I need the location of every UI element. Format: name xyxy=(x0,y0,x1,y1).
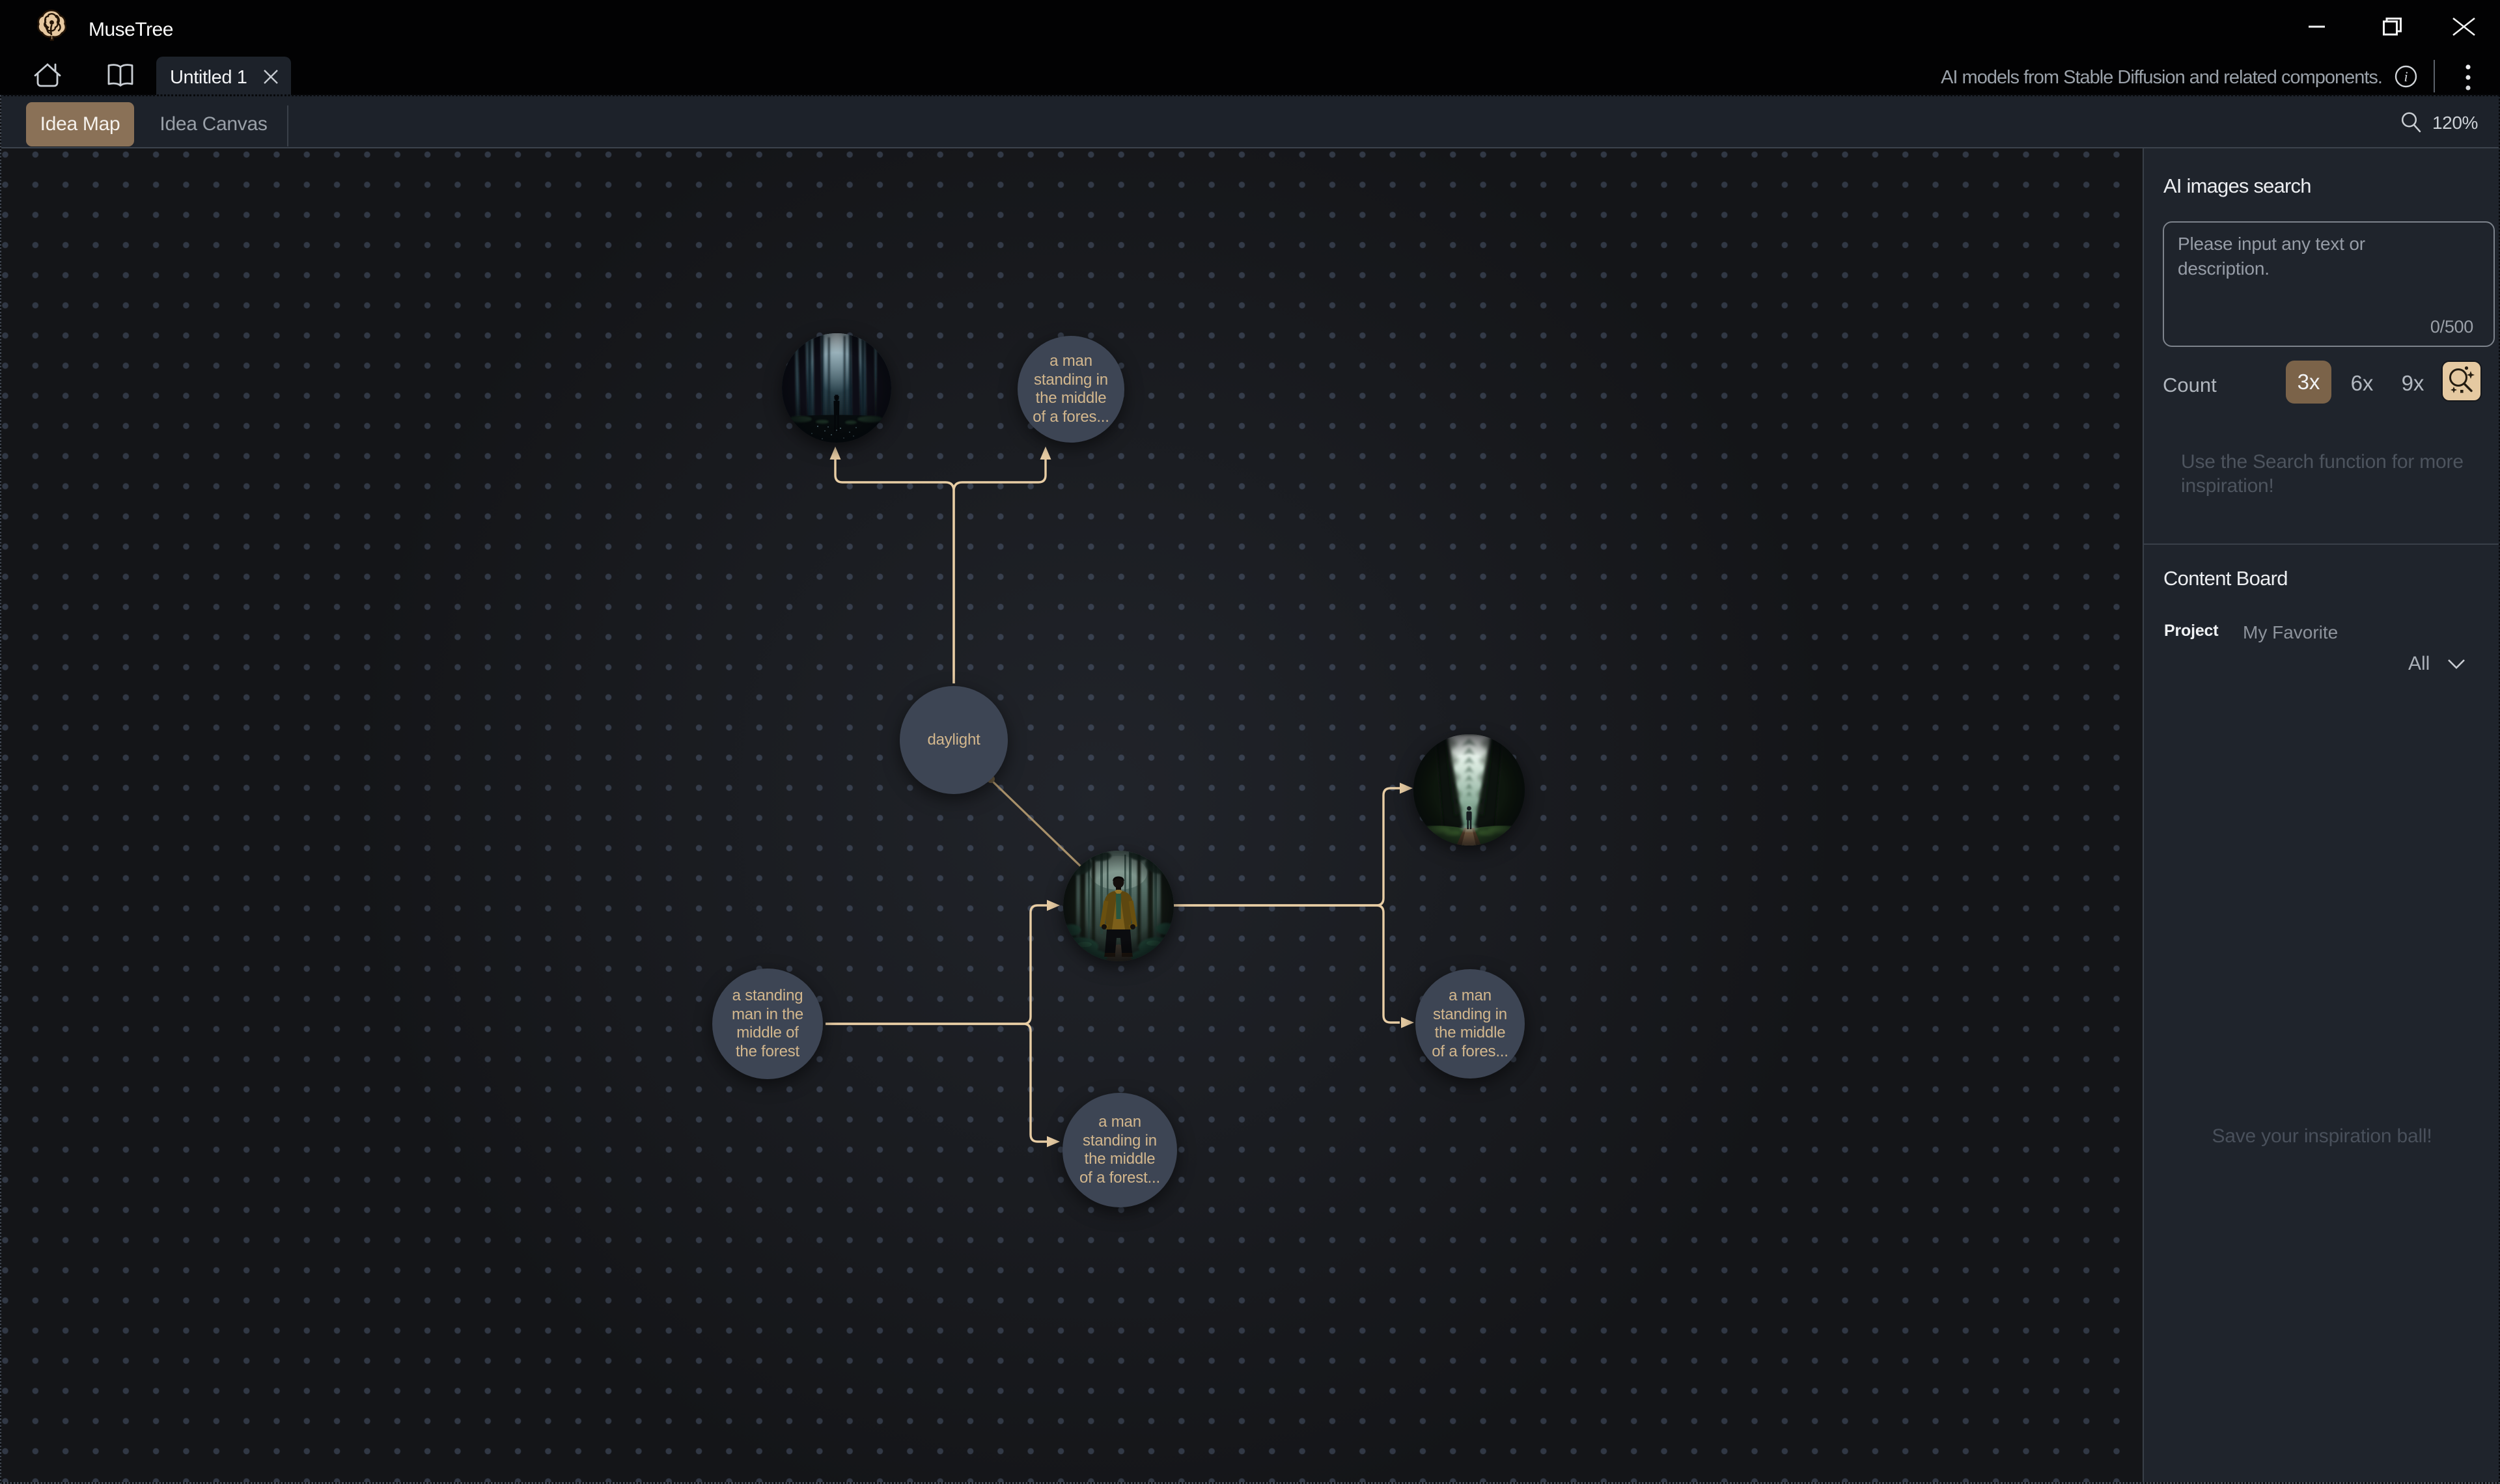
svg-text:i: i xyxy=(2404,68,2408,85)
